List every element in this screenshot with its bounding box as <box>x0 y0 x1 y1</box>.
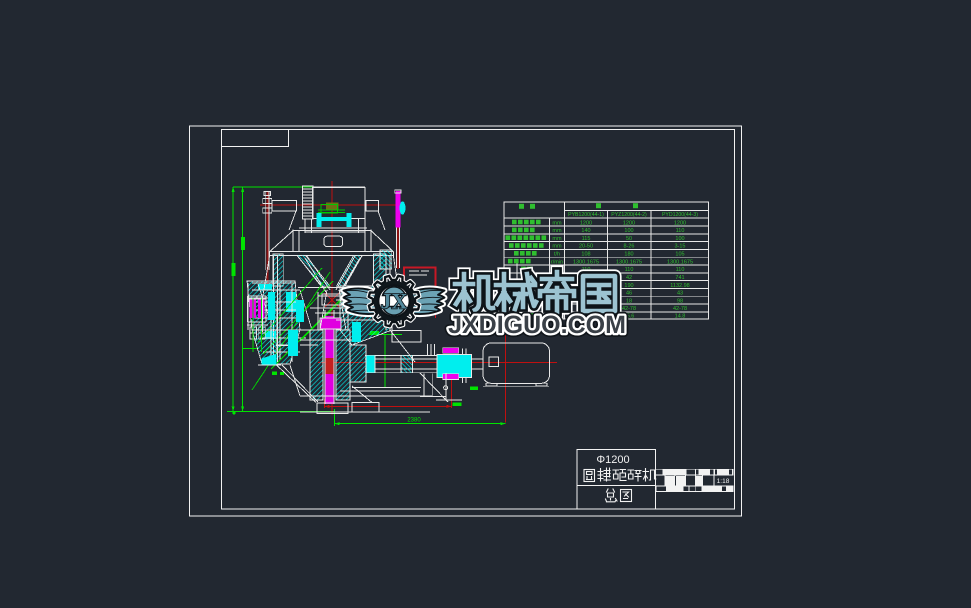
svg-text:t/h: t/h <box>554 252 560 258</box>
svg-text:110: 110 <box>676 228 685 234</box>
svg-text:110: 110 <box>676 267 685 273</box>
svg-text:115: 115 <box>582 236 591 242</box>
svg-text:46: 46 <box>626 291 632 297</box>
svg-text:JX: JX <box>381 289 408 314</box>
svg-text:8-26: 8-26 <box>623 244 634 250</box>
svg-text:1300.1675: 1300.1675 <box>573 259 599 265</box>
svg-text:mm: mm <box>552 244 562 250</box>
svg-text:mm: mm <box>552 220 562 226</box>
svg-text:1200: 1200 <box>580 220 592 226</box>
svg-text:741: 741 <box>675 275 684 281</box>
svg-text:190: 190 <box>624 283 633 289</box>
svg-text:108: 108 <box>581 252 590 258</box>
svg-text:1132.98: 1132.98 <box>670 283 689 289</box>
svg-text:140: 140 <box>581 228 590 234</box>
svg-text:42: 42 <box>626 275 632 281</box>
svg-text:2380: 2380 <box>407 418 421 424</box>
svg-text:r/min: r/min <box>551 259 563 265</box>
svg-text:JXDIGUO.COM: JXDIGUO.COM <box>448 311 626 339</box>
svg-text:PYB1200(44-1): PYB1200(44-1) <box>568 212 604 218</box>
svg-text:50: 50 <box>626 236 632 242</box>
svg-text:3-15: 3-15 <box>674 244 685 250</box>
svg-text:110: 110 <box>625 267 634 273</box>
svg-text:180: 180 <box>624 252 633 258</box>
svg-text:14.8: 14.8 <box>675 314 686 320</box>
svg-text:mm: mm <box>552 236 562 242</box>
svg-text:105: 105 <box>675 252 684 258</box>
svg-text:100: 100 <box>675 236 684 242</box>
svg-text:42-78: 42-78 <box>673 306 687 312</box>
svg-text:98: 98 <box>677 298 683 304</box>
svg-text:18: 18 <box>626 298 632 304</box>
svg-text:1:18: 1:18 <box>717 478 730 485</box>
svg-text:Φ1200: Φ1200 <box>596 454 629 466</box>
svg-text:1300.1675: 1300.1675 <box>616 259 642 265</box>
svg-text:1300.1675: 1300.1675 <box>667 259 693 265</box>
svg-text:20-50: 20-50 <box>579 244 593 250</box>
svg-text:PYZ1200(44-2): PYZ1200(44-2) <box>611 212 647 218</box>
svg-text:PYD1200(44-3): PYD1200(44-3) <box>662 212 698 218</box>
svg-text:1200: 1200 <box>623 220 635 226</box>
svg-text:mm: mm <box>552 228 562 234</box>
svg-text:1200: 1200 <box>674 220 686 226</box>
svg-text:43: 43 <box>677 291 683 297</box>
svg-text:100: 100 <box>624 228 633 234</box>
